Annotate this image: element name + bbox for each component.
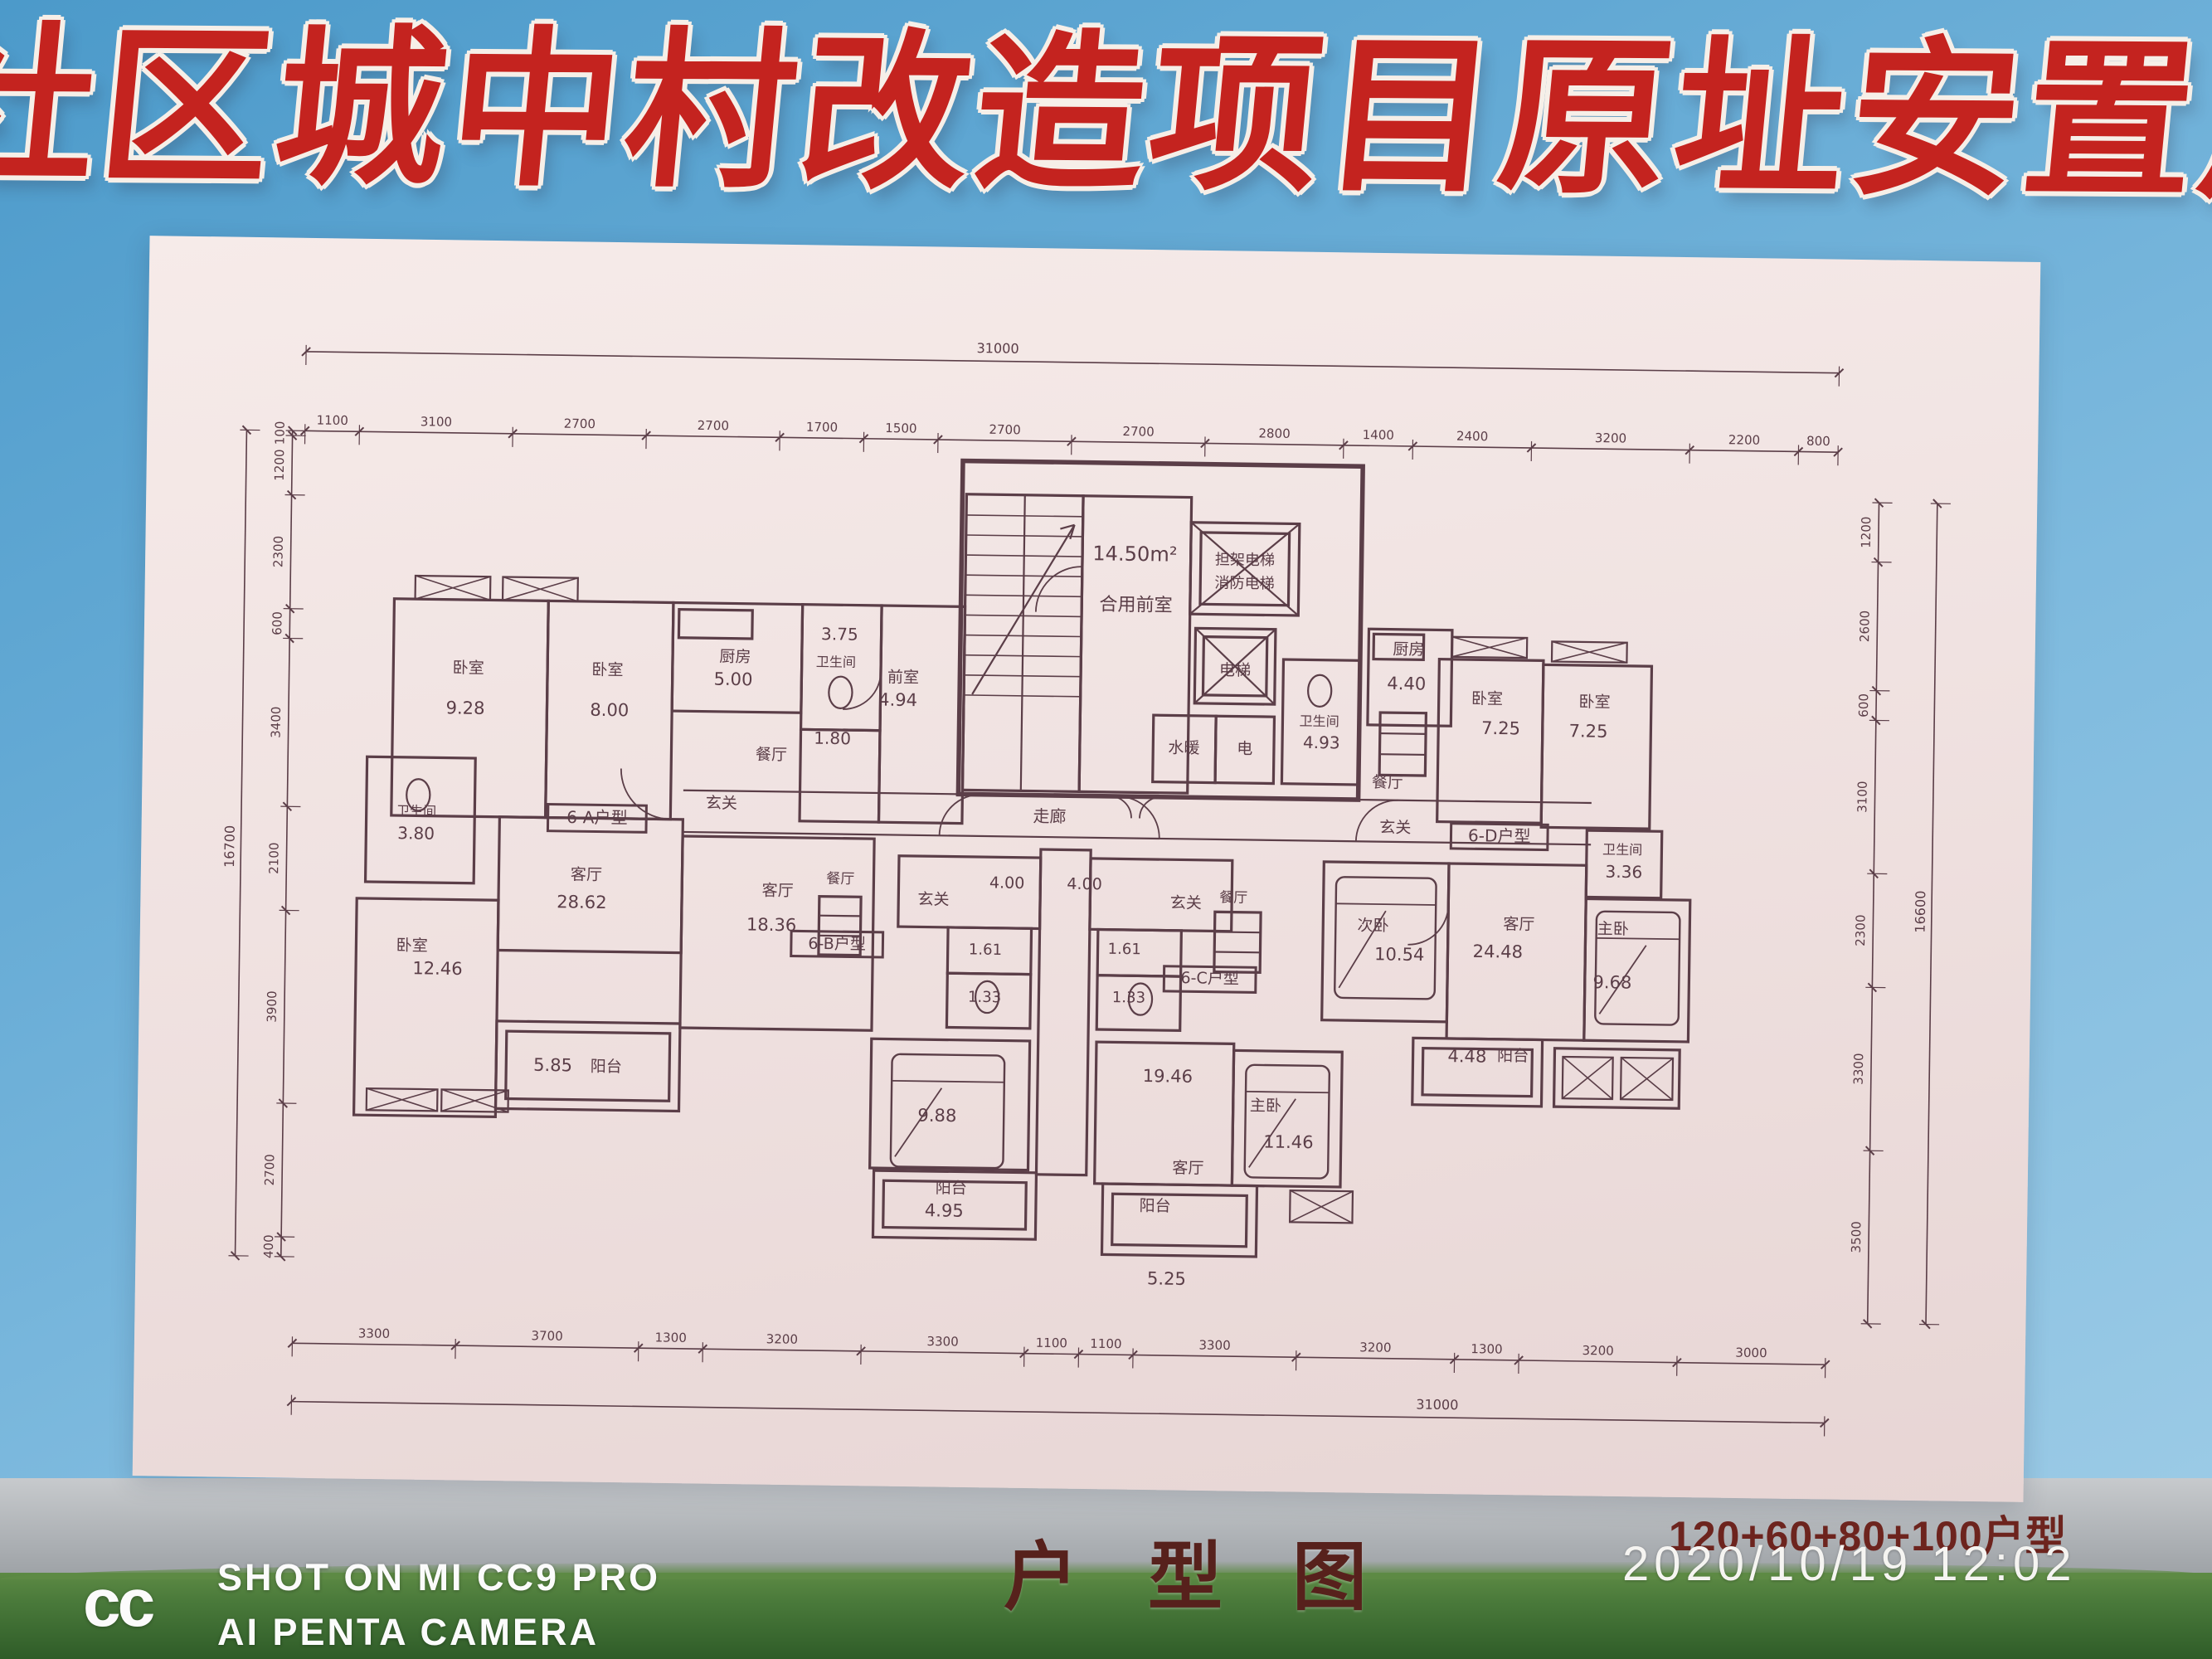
room-label: 卧室 [1578,693,1610,712]
dimension-label: 2300 [1853,914,1869,946]
bed-icon [1336,903,1437,905]
room-label: 12.46 [412,957,463,979]
dimension-label: 2400 [1456,429,1489,445]
room-label: 14.50m² [1092,542,1178,566]
room-label: 11.46 [1263,1131,1314,1152]
stair-tread [965,635,1082,637]
bed-icon [1246,1092,1329,1092]
room-label: 客厅 [1503,915,1534,934]
dimension-total-label: 16700 [221,825,238,868]
floorplan-drawing: 1100310027002700170015002700270028001400… [207,303,2015,1464]
room-label: 8.00 [590,699,629,721]
room-label: 3.75 [821,624,858,645]
wall [678,610,752,639]
dimension-label: 1200 [1859,516,1874,548]
room-label: 次卧 [1357,917,1388,936]
dimension-label: 1100 [1036,1335,1068,1351]
room-label: 走廊 [1033,806,1067,827]
billboard-title: 社区城中村改造项目原址安置户型图 [0,0,2212,231]
room-label: 玄关 [1170,894,1202,913]
bed-icon [1245,1065,1330,1179]
room-label: 4.95 [925,1199,964,1221]
dim-line [306,352,1839,373]
bed-icon [1597,938,1680,939]
room-label: 9.28 [445,697,484,718]
dimension-label: 3100 [1855,781,1870,813]
room-label: 10.54 [1374,943,1425,965]
room-label: 玄关 [917,890,949,909]
bed-icon [892,1081,1004,1082]
dimension-label: 2200 [1728,432,1761,448]
dimension-label: 2700 [989,422,1021,438]
stair-tread [964,675,1081,677]
stair-tread [966,515,1083,517]
room-label: 阳台 [936,1179,967,1198]
room-label: 卫生间 [1602,841,1642,858]
wall [1095,1042,1234,1185]
dimension-label: 1200 [272,449,288,481]
room-label: 18.36 [746,914,797,936]
wall [1214,912,1261,972]
door-arc [1140,796,1161,818]
dimension-label: 2600 [1857,611,1873,643]
room-label: 合用前室 [1099,594,1173,616]
room-label: 4.40 [1387,673,1426,694]
wall-line [819,916,861,917]
room-label: 担架电梯 [1215,551,1276,569]
room-label: 1.61 [1107,941,1141,959]
room-label: 卫生间 [816,654,856,670]
wall [354,898,498,1117]
room-label: 1.33 [968,989,1002,1007]
dimension-label: 3000 [1735,1345,1767,1361]
dimension-label: 3100 [421,414,453,430]
camera-watermark-logo: cc [83,1564,152,1642]
wall [878,606,965,824]
room-label: 电 [1237,740,1252,758]
stair-tread [965,655,1082,657]
wall-line [1215,932,1261,932]
room-label: 卧室 [591,661,623,680]
stair-tread [965,575,1082,577]
door-arc [620,769,671,820]
dimension-label: 3300 [1851,1053,1867,1085]
room-label: 24.48 [1472,941,1523,962]
unit-name-label: 6-B户型 [808,935,866,954]
dimension-label: 600 [270,611,284,635]
wall-line [1379,754,1425,755]
dimension-label: 3300 [926,1334,959,1350]
stair-tread [965,555,1082,557]
wall [498,817,683,953]
dimension-label: 3700 [531,1328,563,1344]
stair-tread [965,615,1082,616]
room-label: 4.00 [1067,875,1102,894]
room-label: 卧室 [452,659,484,678]
dimension-label: 100 [272,421,287,445]
room-label: 7.25 [1568,720,1607,742]
dimension-label: 3900 [265,990,280,1023]
room-label: 餐厅 [1372,773,1403,792]
room-label: 阳台 [1497,1047,1529,1066]
room-label: 厨房 [719,648,751,667]
camera-watermark-line1: SHOT ON MI CC9 PRO [217,1556,660,1599]
wall [1379,713,1426,776]
toilet-icon [1308,675,1332,708]
wall [1036,849,1091,1175]
wall-line [1380,733,1426,734]
dimension-label: 2700 [564,416,596,432]
dimension-label: 3200 [1582,1343,1614,1359]
room-label: 阳台 [591,1058,622,1077]
dimension-label: 1500 [885,421,917,436]
dimension-label: 400 [261,1234,276,1258]
room-label: 5.85 [533,1054,572,1076]
bed-icon [1334,877,1437,999]
door-arc [1407,905,1448,946]
wall [1112,1194,1247,1247]
room-label: 28.62 [557,891,607,912]
dimension-label: 3200 [766,1331,799,1347]
wall-line [1214,952,1260,953]
room-label: 卧室 [396,937,428,956]
dimension-label: 2100 [266,842,282,874]
dim-line [291,1402,1824,1423]
toilet-icon [829,677,853,709]
room-label: 9.88 [917,1105,956,1126]
room-label: 电梯 [1219,661,1251,680]
dimension-label: 800 [1806,434,1830,449]
wall-line [1021,495,1025,791]
door-arc [1110,796,1131,818]
billboard-photo: 社区城中村改造项目原址安置户型图 11003100270027001700150… [0,0,2212,1659]
room-label: 3.36 [1605,862,1642,883]
wall [1232,1050,1342,1187]
room-label: 1.61 [969,941,1003,959]
dimension-label: 600 [1856,693,1871,718]
dimension-label: 3300 [1198,1338,1231,1354]
dimension-label: 3500 [1849,1221,1864,1253]
stair-tread [966,535,1083,537]
room-label: 4.94 [878,689,917,711]
room-label: 19.46 [1143,1065,1194,1087]
dimension-label: 1300 [1471,1341,1503,1357]
dimension-total-label: 31000 [1416,1397,1458,1413]
dimension-label: 1100 [1090,1336,1122,1352]
room-label: 餐厅 [1219,889,1247,906]
room-label: 4.48 [1447,1045,1486,1067]
stair-tread [964,695,1081,697]
dimension-label: 2300 [270,536,286,568]
dimension-total-label: 16600 [1913,890,1929,932]
room-label: 卧室 [1471,689,1503,708]
dimension-label: 2700 [262,1154,278,1186]
wall [366,757,476,883]
room-label: 餐厅 [826,871,854,888]
caption-huxingtu: 户型图 [1004,1516,1437,1624]
room-label: 玄关 [706,794,737,813]
dimension-label: 2700 [698,418,730,434]
wall [1090,859,1232,932]
dimension-label: 1300 [654,1330,687,1345]
room-label: 主卧 [1250,1097,1281,1116]
stair-tread [965,595,1082,596]
dimension-label: 2700 [1122,424,1155,440]
dimension-total-label: 31000 [976,340,1018,357]
door-arc [940,794,982,836]
room-label: 阳台 [1139,1197,1170,1216]
room-label: 卫生间 [396,803,436,820]
photo-timestamp: 2020/10/19 12:02 [1622,1536,2077,1592]
room-label: 消防电梯 [1214,574,1275,592]
room-label: 7.25 [1481,718,1520,739]
room-label: 1.33 [1112,989,1146,1007]
room-label: 5.00 [713,669,752,690]
room-label: 4.93 [1303,732,1340,753]
wall [1437,659,1544,824]
room-label: 水暖 [1168,739,1199,758]
wall [1541,664,1651,829]
unit-name-label: 6-A户型 [566,807,628,828]
room-label: 客厅 [571,865,602,884]
door-arc [1036,566,1082,612]
room-label: 客厅 [1172,1159,1203,1178]
dimension-label: 1400 [1363,427,1395,443]
camera-watermark-line2: AI PENTA CAMERA [217,1611,599,1654]
room-label: 厨房 [1393,640,1424,659]
unit-name-label: 6-D户型 [1468,825,1531,846]
wall [506,1031,670,1101]
dimension-label: 1700 [806,420,839,435]
room-label: 主卧 [1597,920,1629,939]
room-label: 9.68 [1592,971,1631,993]
room-label: 前室 [887,669,919,688]
dimension-label: 2800 [1258,426,1291,441]
room-label: 4.00 [989,873,1025,893]
room-label: 1.80 [814,728,851,749]
room-label: 卫生间 [1299,713,1339,730]
room-label: 玄关 [1379,819,1411,838]
room-label: 3.80 [397,823,435,844]
room-label: 客厅 [762,882,794,901]
unit-name-label: 6-C户型 [1180,969,1239,988]
dimension-label: 1100 [316,412,348,428]
room-label: 5.25 [1147,1267,1186,1289]
floorplan-board: 1100310027002700170015002700270028001400… [133,236,2041,1502]
dimension-label: 3400 [268,706,284,738]
dimension-label: 3200 [1595,431,1627,446]
dimension-label: 3300 [358,1326,391,1341]
dimension-label: 3200 [1359,1340,1392,1355]
room-label: 餐厅 [756,746,787,765]
